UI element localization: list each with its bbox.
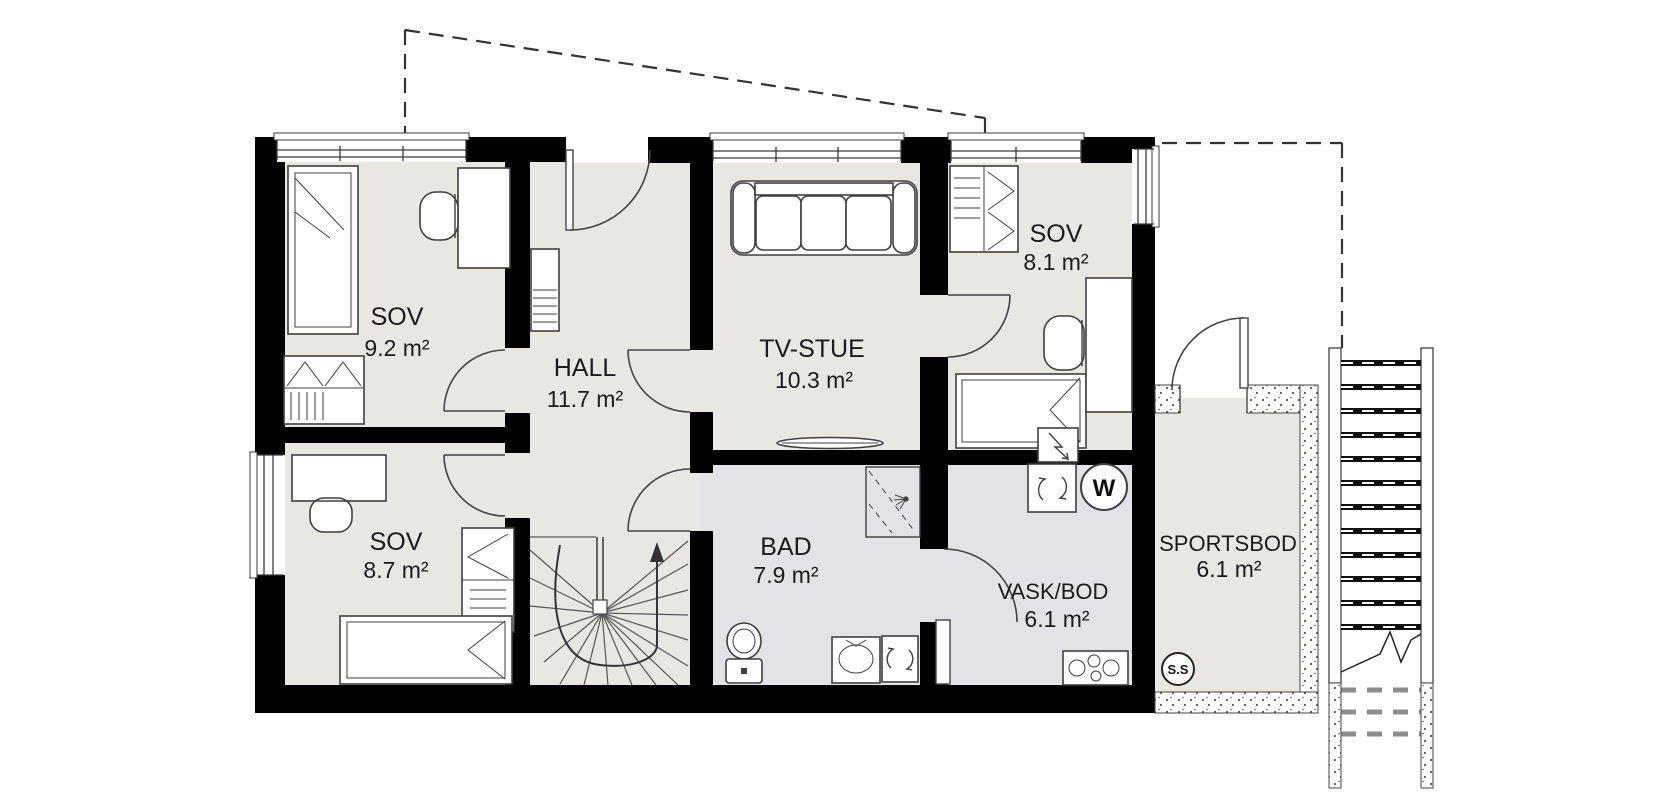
room-name-vask-bod: VASK/BOD [998,579,1109,604]
room-area-sov-8-1: 8.1 m² [1023,249,1089,275]
window-sov-9-2 [274,133,469,162]
sink-bad [832,637,880,683]
window-sov-8-7-left [250,452,285,578]
room-name-tv-stue: TV-STUE [759,335,865,363]
wall-right [1132,224,1155,713]
washing-machine-vask [1028,464,1076,512]
room-area-tv-stue: 10.3 m² [775,367,853,393]
room-label-sov-8-1: SOV 8.1 m² [1023,220,1089,275]
dryer-vask: W [1081,464,1127,510]
stair-post-left [1329,683,1341,788]
room-area-bad: 7.9 m² [753,562,819,588]
exterior-stair [1329,348,1433,788]
floorplan-svg: W [0,0,1670,800]
dashed-line-sloped [405,30,985,118]
washing-machine-bad [882,636,918,682]
closet-hall [531,249,559,331]
sportsbod-wall-bottom [1155,692,1318,713]
room-area-vask-bod: 6.1 m² [1024,606,1090,632]
room-label-bad: BAD 7.9 m² [753,533,819,588]
exterior-stair-treads-below-grade [1341,690,1421,734]
room-name-sportsbod: SPORTSBOD [1159,531,1297,556]
room-area-sov-9-2: 9.2 m² [364,335,430,361]
ss-marker-label: S.S [1168,662,1189,677]
stair-break-line [1341,632,1421,672]
entry-opening [566,137,648,163]
room-area-hall: 11.7 m² [547,386,624,412]
exterior-stair-treads [1341,363,1421,627]
room-area-sov-8-7: 8.7 m² [363,557,429,583]
ss-marker: S.S [1162,653,1194,685]
wardrobe-sov-8-1 [950,166,1018,252]
wall-left [255,137,285,713]
bed-sov-8-7 [340,616,512,684]
room-name-sov-8-7: SOV [370,528,423,556]
tv-screen [777,438,883,449]
room-area-sportsbod: 6.1 m² [1196,556,1262,582]
room-name-sov-9-2: SOV [371,303,424,331]
sofa-tv-stue [731,181,917,255]
window-sov-8-1-right [1132,146,1159,227]
sink-unit-vask [1063,651,1128,685]
room-label-sov-8-7: SOV 8.7 m² [363,528,429,583]
window-tv-stue [710,133,904,163]
dryer-symbol-label: W [1093,475,1116,502]
room-name-hall: HALL [554,354,617,382]
stair-rail-right [1421,348,1433,683]
sportsbod-wall-right [1300,385,1318,713]
dresser-sov-9-2 [284,356,364,424]
wall-bottom [255,685,1155,713]
room-name-bad: BAD [760,533,811,561]
room-name-sov-8-1: SOV [1030,220,1083,248]
stair-rail-left [1329,348,1341,683]
electrical-panel-icon [1038,428,1078,462]
bed-sov-9-2 [288,166,358,334]
floor-plan: W [0,0,1670,800]
window-sov-8-1-top [948,133,1084,163]
toilet-bad [726,623,762,683]
stair-post-right [1421,683,1433,788]
